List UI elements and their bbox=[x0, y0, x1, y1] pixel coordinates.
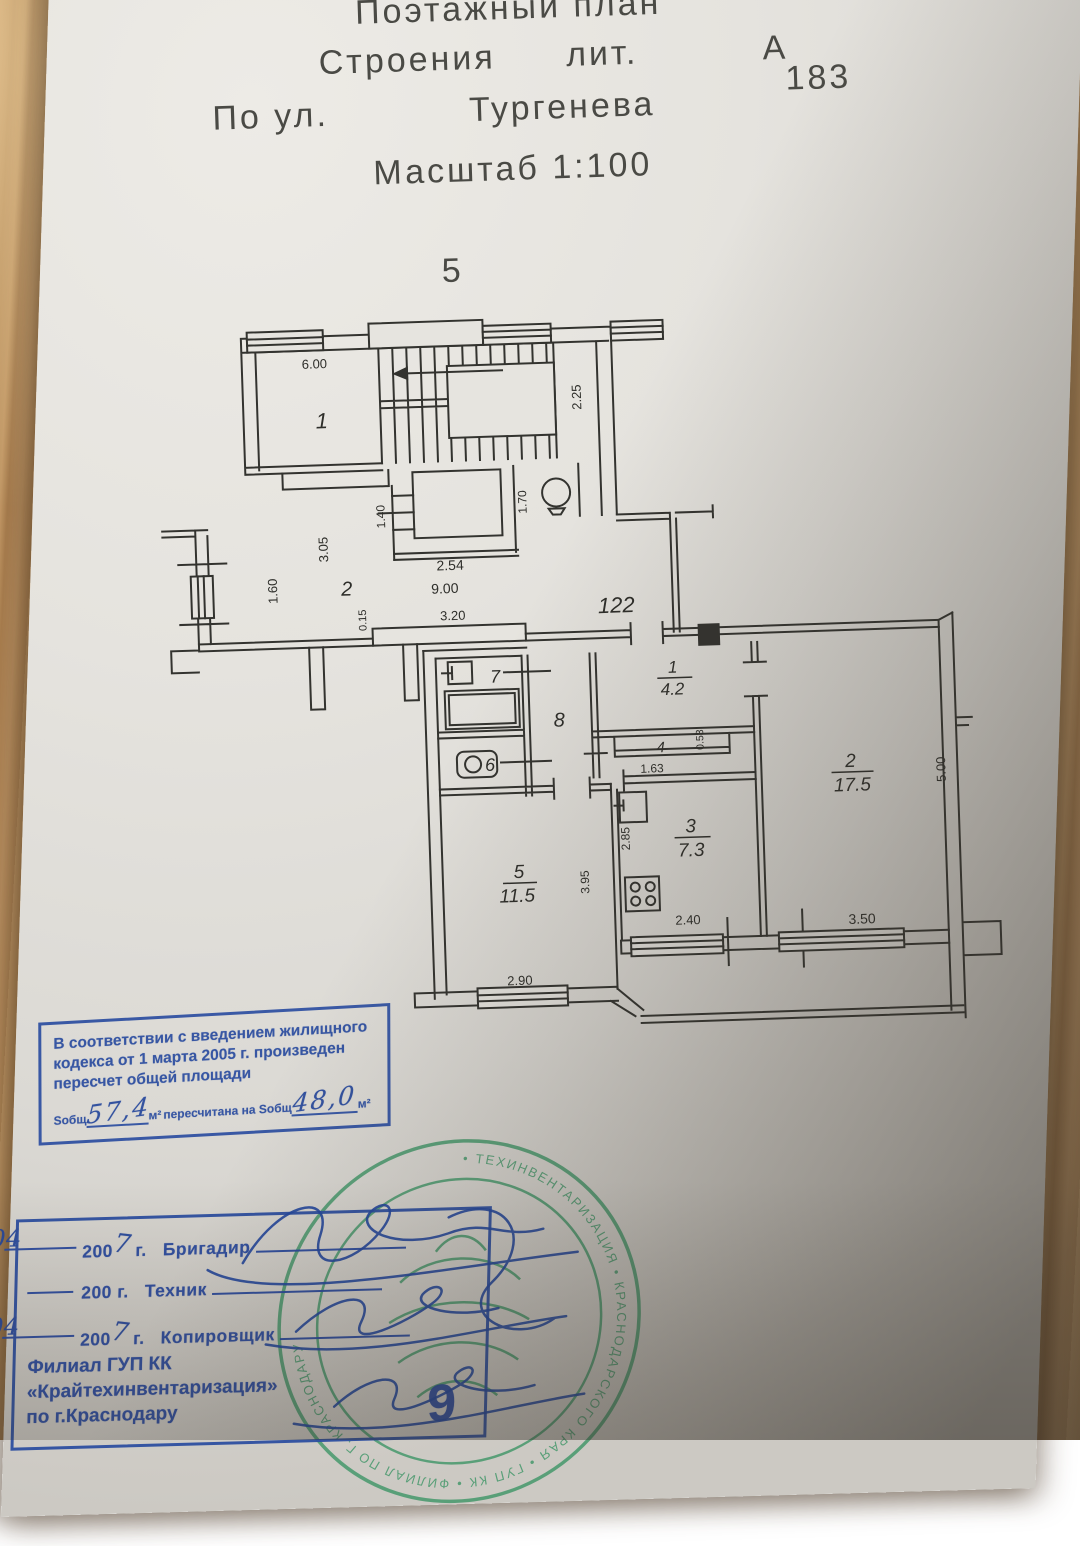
m2-label-1: м² bbox=[148, 1108, 161, 1124]
g-1: г. bbox=[135, 1240, 147, 1260]
year-prefix-1: 200 bbox=[82, 1241, 113, 1262]
new-area-value: 48,0 bbox=[292, 1089, 358, 1116]
recalc-mid-text: пересчитана на Sобщ bbox=[163, 1101, 291, 1124]
recalc-stamp: В соответствии с введением жилищного код… bbox=[38, 1003, 390, 1145]
s-label-1: Sобщ bbox=[54, 1112, 87, 1129]
signatures bbox=[142, 1182, 649, 1496]
old-area-value: 57,4 bbox=[86, 1101, 148, 1128]
stamps-layer: • ТЕХИНВЕНТАРИЗАЦИЯ • КРАСНОДАРСКОГО КРА… bbox=[12, 0, 1080, 1517]
year-hand-3: 7 bbox=[109, 1317, 131, 1349]
recalc-formula: Sобщ 57,4 м² пересчитана на Sобщ 48,0 м² bbox=[54, 1088, 376, 1129]
m2-label-2: м² bbox=[358, 1097, 371, 1113]
year-prefix-2: 200 bbox=[81, 1282, 112, 1303]
g-2: г. bbox=[117, 1281, 129, 1301]
year-hand-1: 7 bbox=[111, 1229, 133, 1261]
year-prefix-3: 200 bbox=[80, 1329, 111, 1350]
g-3: г. bbox=[133, 1328, 145, 1348]
photographed-floorplan-document: { "header": { "line1": "Поэтажный план",… bbox=[0, 0, 1080, 1440]
